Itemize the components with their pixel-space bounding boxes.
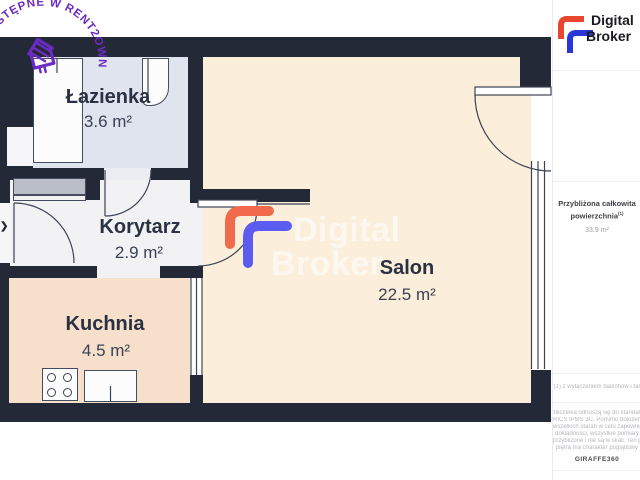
summary-title-line2: powierzchnia(1) [553, 209, 640, 222]
salon-wall-stub [203, 189, 310, 202]
kitchen-salon-glass-partition [190, 278, 203, 375]
corridor-kitchen-opening [97, 266, 160, 278]
sidebar-divider [553, 470, 640, 471]
balcony-door-and-window-band [531, 95, 551, 370]
room-label-salon: Salon [380, 257, 434, 280]
room-label-kitchen: Kuchnia [66, 313, 145, 336]
footnote-text: (1) z wyłączeniem balkonów i tar [553, 384, 640, 390]
sidebar-divider [553, 70, 640, 71]
giraffe360-brand: GIRAFFE360 [553, 456, 640, 463]
disclaimer-line: RICS IPMS 3C. Pomimo dołożeni [553, 417, 640, 424]
room-label-bathroom: Łazienka [66, 86, 150, 109]
bathtub-icon [33, 58, 83, 163]
digitalbroker-logo-text: Digital Broker [591, 12, 634, 44]
logo-text-digital: Digital [591, 12, 634, 28]
total-area-summary: Przybliżona całkowita powierzchnia(1) 33… [553, 199, 640, 234]
wardrobe-door-strip [13, 195, 86, 201]
floorplan-screenshot: Digital Broker Łazienka 3.6 m² Korytarz … [0, 0, 640, 480]
watermark-broker: Broker [271, 245, 384, 284]
room-area-bathroom: 3.6 m² [84, 112, 132, 132]
logo-text-broker: Broker [586, 28, 634, 44]
wall-niche [7, 127, 33, 166]
burner-icon [47, 373, 56, 382]
burner-icon [63, 388, 72, 397]
bathroom-door-opening [104, 168, 151, 180]
wall-corner-block [520, 42, 551, 92]
entrance-arrow-icon: ❯ [0, 221, 8, 232]
wardrobe-icon [13, 178, 86, 195]
stove-icon [42, 368, 78, 401]
disclaimer-line: piętra ma charakter poglądowy [553, 445, 640, 452]
disclaimer-line: przybliżone i nie są w skali. Ten p [553, 438, 640, 445]
room-area-salon: 22.5 m² [378, 285, 436, 305]
entrance-opening [0, 203, 10, 263]
room-area-corridor: 2.9 m² [115, 243, 163, 263]
summary-title-line1: Przybliżona całkowita [553, 199, 640, 209]
sidebar-divider [553, 373, 640, 374]
burner-icon [63, 373, 72, 382]
wall-segment [86, 172, 100, 200]
sidebar-divider [553, 181, 640, 182]
kitchen-counter-icon [84, 370, 137, 402]
sidebar: Digital Broker Przybliżona całkowita pow… [552, 0, 640, 480]
disclaimer-text: bliczenia odnoszą się do standar RICS IP… [553, 410, 640, 452]
disclaimer-line: wszelkich starań w celu zapewnie [553, 424, 640, 431]
summary-title-word: powierzchnia [570, 212, 618, 221]
summary-value: 33.9 m² [553, 227, 640, 234]
sidebar-divider [553, 402, 640, 403]
burner-icon [47, 388, 56, 397]
disclaimer-line: bliczenia odnoszą się do standar [553, 410, 640, 417]
room-label-corridor: Korytarz [99, 216, 180, 239]
corridor-salon-door-opening [190, 203, 203, 266]
summary-footnote-marker: (1) [618, 211, 624, 216]
disclaimer-line: dokładności, wszystkie pomiary [553, 431, 640, 438]
room-area-kitchen: 4.5 m² [82, 341, 130, 361]
